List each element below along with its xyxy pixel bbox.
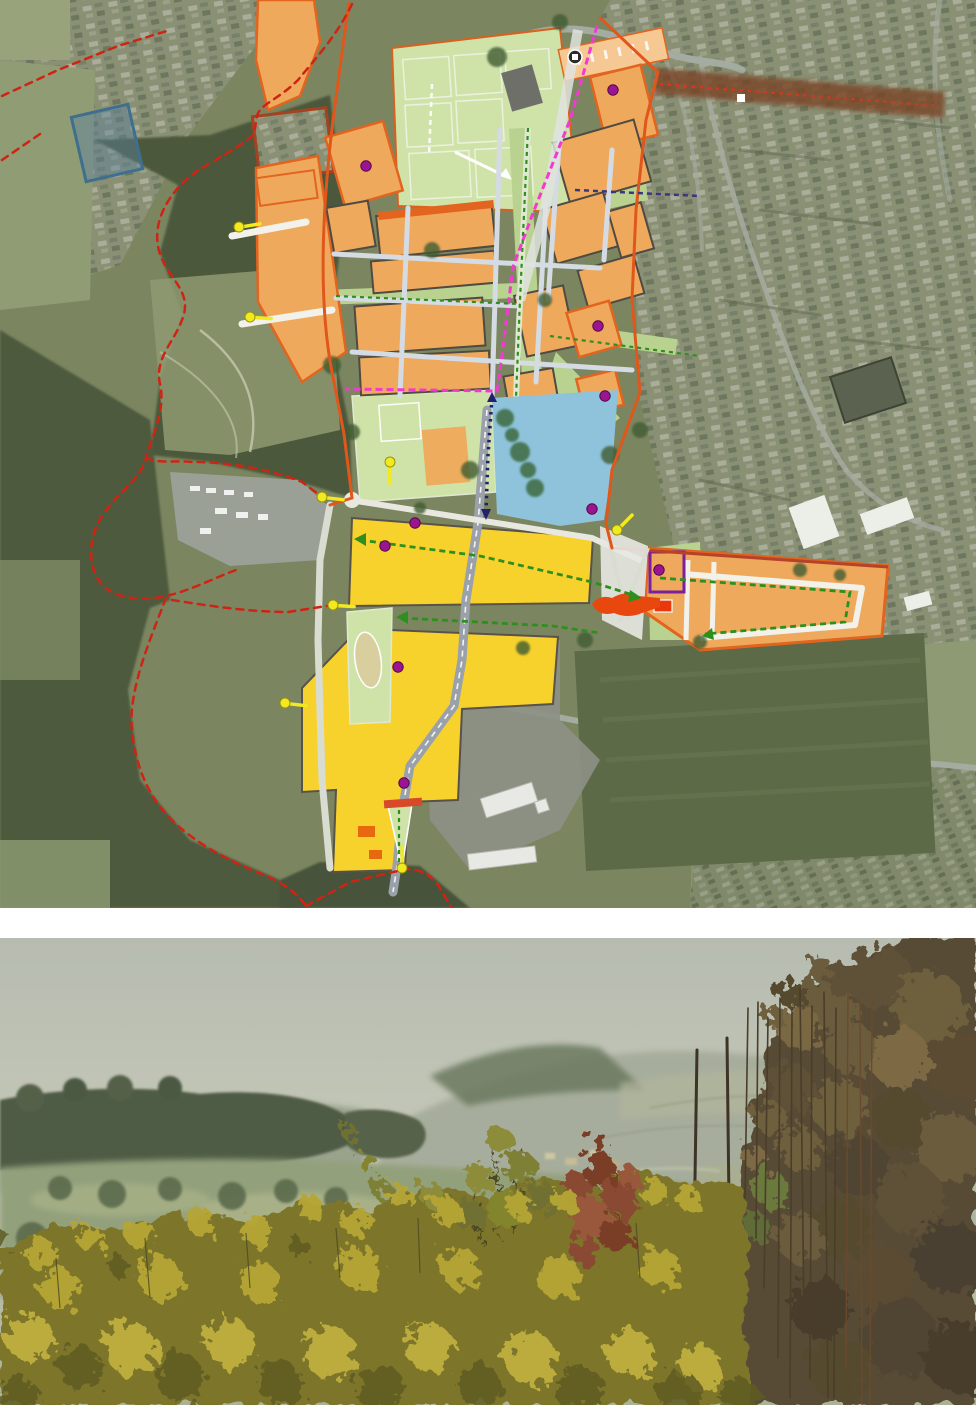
node-dot [654,565,664,575]
bus-stop-icon [568,50,582,64]
south-playing-field [574,633,935,871]
node-dot [600,391,610,401]
green-strip-oval [347,608,392,724]
node-dot [410,518,420,528]
node-dot [380,541,390,551]
node-dot [361,161,371,171]
node-dot [608,85,618,95]
node-dot [593,321,603,331]
landscape-photo-svg [0,938,976,1405]
blue-outlined-site [71,104,142,181]
water-body [492,390,618,526]
autumn-tree [740,938,976,1405]
node-dot [393,662,403,672]
playing-fields-south [352,390,496,502]
countryside-view-photo [0,938,976,1405]
image-divider [0,908,976,938]
masterplan-aerial-map [0,0,976,908]
node-dot [587,504,597,514]
news-image-composite [0,0,976,1405]
node-dot [399,778,409,788]
masterplan-map-svg [0,0,976,908]
